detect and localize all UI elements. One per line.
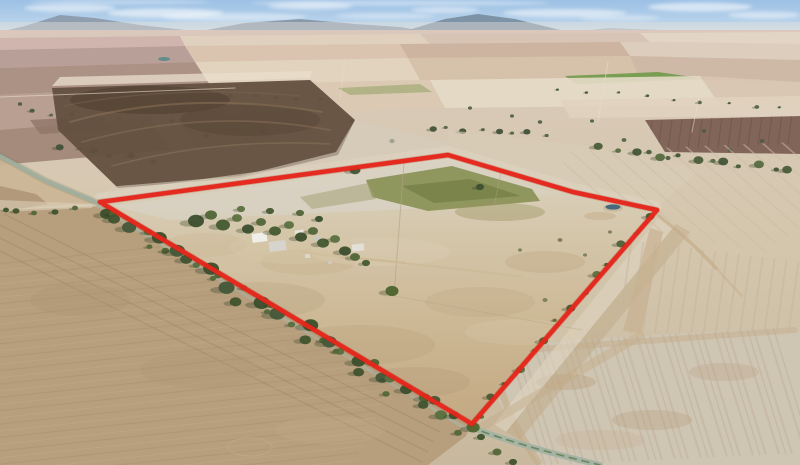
aerial-photograph [0, 0, 800, 465]
aerial-photo-canvas [0, 0, 800, 465]
photo-layers [0, 0, 800, 465]
